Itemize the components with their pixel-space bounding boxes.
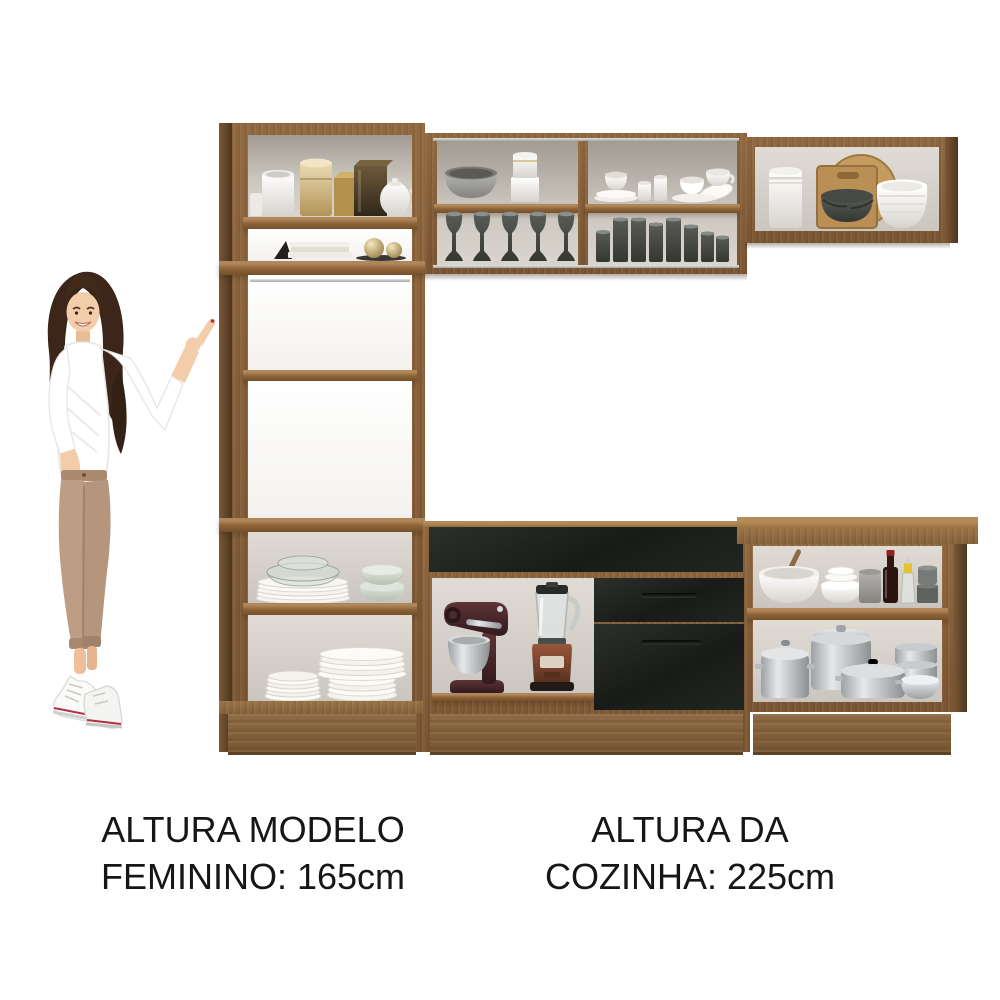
tall-cabinet-left-side [219, 123, 232, 752]
tumbler-glasses [588, 215, 737, 263]
sauce-bottle [883, 550, 898, 603]
sneaker-back [84, 686, 122, 728]
base-right-side-panel [954, 544, 967, 712]
tall-cabinet-shelf [243, 217, 417, 229]
oil-bottle [901, 557, 915, 603]
wall-cabinet-shadow [745, 243, 950, 249]
nail-polish [211, 319, 215, 323]
pants-leg-right [82, 480, 111, 646]
glass-serving-bowls [267, 556, 339, 586]
white-bowl-stack [821, 567, 861, 603]
aluminum-trim-bottom [433, 265, 739, 268]
model-figure [25, 256, 235, 758]
tall-cabinet-plinth [228, 714, 416, 755]
tall-cabinet-band [219, 261, 425, 275]
pantry-top-items [248, 137, 412, 217]
caption-kitchen-line1: ALTURA DA [472, 806, 908, 853]
niche-floor [432, 693, 594, 701]
wall-center-divider [578, 141, 588, 265]
drawer-handle [641, 593, 697, 598]
tall-cabinet-shelf [243, 370, 417, 381]
tall-cabinet-hutch1 [248, 532, 412, 603]
hanging-rail [250, 279, 410, 282]
small-plate-stack [265, 671, 321, 701]
books-and-spheres [248, 231, 412, 261]
wall-center-right-compartment [588, 141, 737, 265]
tall-cabinet-shelf [243, 603, 417, 615]
small-cup [250, 193, 262, 216]
tall-cabinet-top-compartment [248, 135, 412, 217]
book-stack [288, 242, 352, 258]
square-board-with-bowls [817, 166, 877, 228]
caption-kitchen-line2: COZINHA: 225cm [472, 853, 908, 900]
white-mug [262, 170, 294, 216]
caption-model-line1: ALTURA MODELO [35, 806, 471, 853]
wall-right-side-panel [945, 137, 958, 243]
countertop [737, 517, 978, 529]
wall-cabinet-right [745, 137, 958, 243]
bowl-and-canisters [437, 143, 578, 203]
blender [520, 582, 584, 694]
black-drawer-2 [594, 624, 744, 710]
cream-canister [300, 159, 332, 217]
base-right-body [745, 544, 967, 712]
wall-center-left-compartment [437, 141, 578, 265]
wall-cabinet-center [425, 133, 747, 274]
gold-sphere [386, 242, 402, 258]
espresso-cups [638, 175, 667, 201]
grey-bowl [445, 167, 497, 199]
cups-and-saucers [588, 145, 737, 203]
wine-glasses [437, 211, 578, 263]
black-drawer-1 [594, 578, 744, 622]
tall-cabinet-decor-shelf [248, 229, 412, 261]
caption-model-line2: FEMININO: 165cm [35, 853, 471, 900]
glass-bowls-plates [248, 534, 412, 603]
celadon-bowls [360, 565, 404, 601]
base-right-plinth [753, 714, 951, 755]
lidded-pot [755, 640, 815, 698]
countertop-apron [737, 529, 978, 544]
base-cabinet-center [423, 521, 750, 752]
cookware-set [755, 620, 940, 702]
black-top-drawer [429, 527, 743, 572]
container-stack [917, 566, 938, 604]
base-right-shelf1 [753, 546, 942, 608]
drawer-handle [641, 640, 701, 645]
white-ridged-jar [769, 167, 802, 228]
base-cabinet-right [737, 517, 978, 752]
base-center-plinth [430, 714, 743, 755]
white-bowl-stack [877, 180, 927, 229]
canister-stack [511, 152, 539, 202]
bowls-and-bottles [755, 546, 940, 608]
tall-cabinet-open-lower [248, 381, 412, 518]
saucer-stack-with-cup [594, 172, 638, 202]
cuff-right [82, 636, 101, 647]
wall-right-compartment [755, 147, 939, 231]
product-image: ALTURA MODELO FEMININO: 165cm ALTURA DA … [0, 0, 1000, 1000]
drawer-stack [594, 578, 744, 710]
caption-model-height: ALTURA MODELO FEMININO: 165cm [35, 806, 471, 900]
gold-sphere [364, 238, 384, 258]
base-right-shelf [747, 608, 948, 620]
plate-stacks [248, 618, 412, 701]
caption-kitchen-height: ALTURA DA COZINHA: 225cm [472, 806, 908, 900]
stand-mixer [438, 594, 516, 694]
large-plate-stack [318, 648, 406, 702]
tall-cabinet-hutch-top [219, 518, 425, 532]
jar-bowls-boards [755, 148, 938, 230]
wall-cabinet-shadow [425, 274, 747, 281]
tall-cabinet [219, 123, 425, 752]
wall-shelf [585, 204, 740, 213]
tall-cabinet-bottom-band [219, 701, 425, 714]
base-right-shelf2 [753, 620, 942, 702]
tall-cabinet-hutch2 [248, 615, 412, 701]
teacup-set [672, 169, 734, 204]
tall-cabinet-open-upper [248, 275, 412, 370]
model-woman-illustration [25, 256, 235, 758]
appliance-niche [432, 578, 594, 701]
grey-canister [859, 569, 881, 603]
mixing-bowl-with-pestle [759, 549, 819, 603]
